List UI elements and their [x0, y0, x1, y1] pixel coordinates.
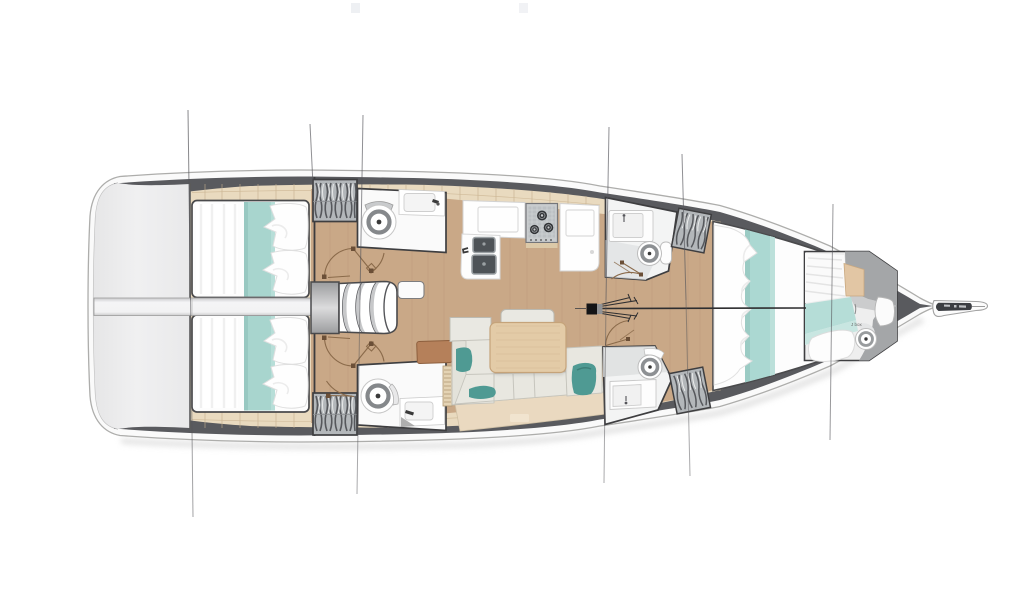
- svg-text:J box: J box: [851, 322, 863, 327]
